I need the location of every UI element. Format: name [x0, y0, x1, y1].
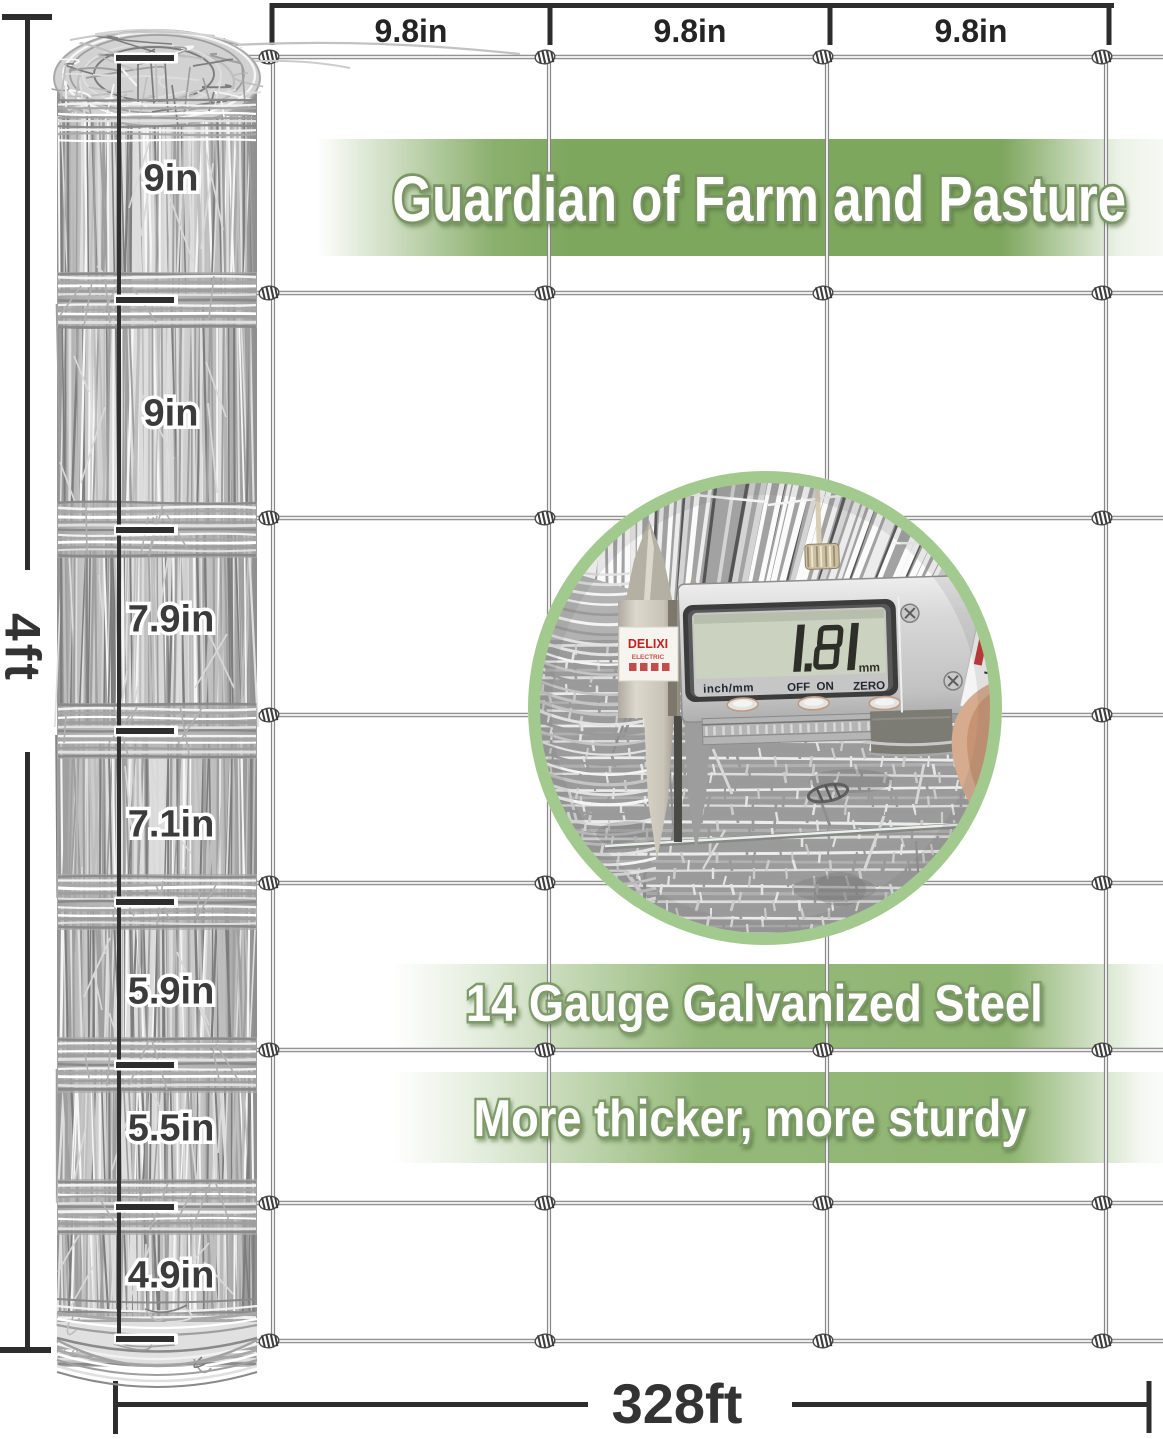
svg-text:14 Gauge Galvanized Steel: 14 Gauge Galvanized Steel — [466, 975, 1043, 1033]
svg-text:ZERO: ZERO — [853, 680, 885, 693]
svg-text:9in: 9in — [144, 158, 199, 200]
svg-text:9.8in: 9.8in — [935, 13, 1008, 49]
svg-text:ELECTRIC: ELECTRIC — [632, 654, 665, 661]
svg-text:7.9in: 7.9in — [128, 599, 215, 641]
svg-text:4.9in: 4.9in — [128, 1255, 215, 1297]
svg-text:OFF ON: OFF ON — [787, 681, 834, 694]
svg-text:5.9in: 5.9in — [128, 971, 215, 1013]
svg-text:4ft: 4ft — [0, 613, 51, 683]
svg-text:DELIXI: DELIXI — [628, 637, 668, 651]
svg-text:inch/mm: inch/mm — [703, 682, 754, 696]
svg-text:7.1in: 7.1in — [128, 804, 215, 846]
svg-text:Guardian of Farm and Pasture: Guardian of Farm and Pasture — [392, 165, 1126, 236]
svg-text:5.5in: 5.5in — [128, 1108, 215, 1150]
svg-text:328ft: 328ft — [612, 1372, 743, 1434]
svg-text:More thicker, more sturdy: More thicker, more sturdy — [473, 1090, 1026, 1148]
svg-text:9in: 9in — [144, 393, 199, 435]
svg-text:9.8in: 9.8in — [654, 13, 727, 49]
svg-text:mm: mm — [858, 660, 880, 675]
